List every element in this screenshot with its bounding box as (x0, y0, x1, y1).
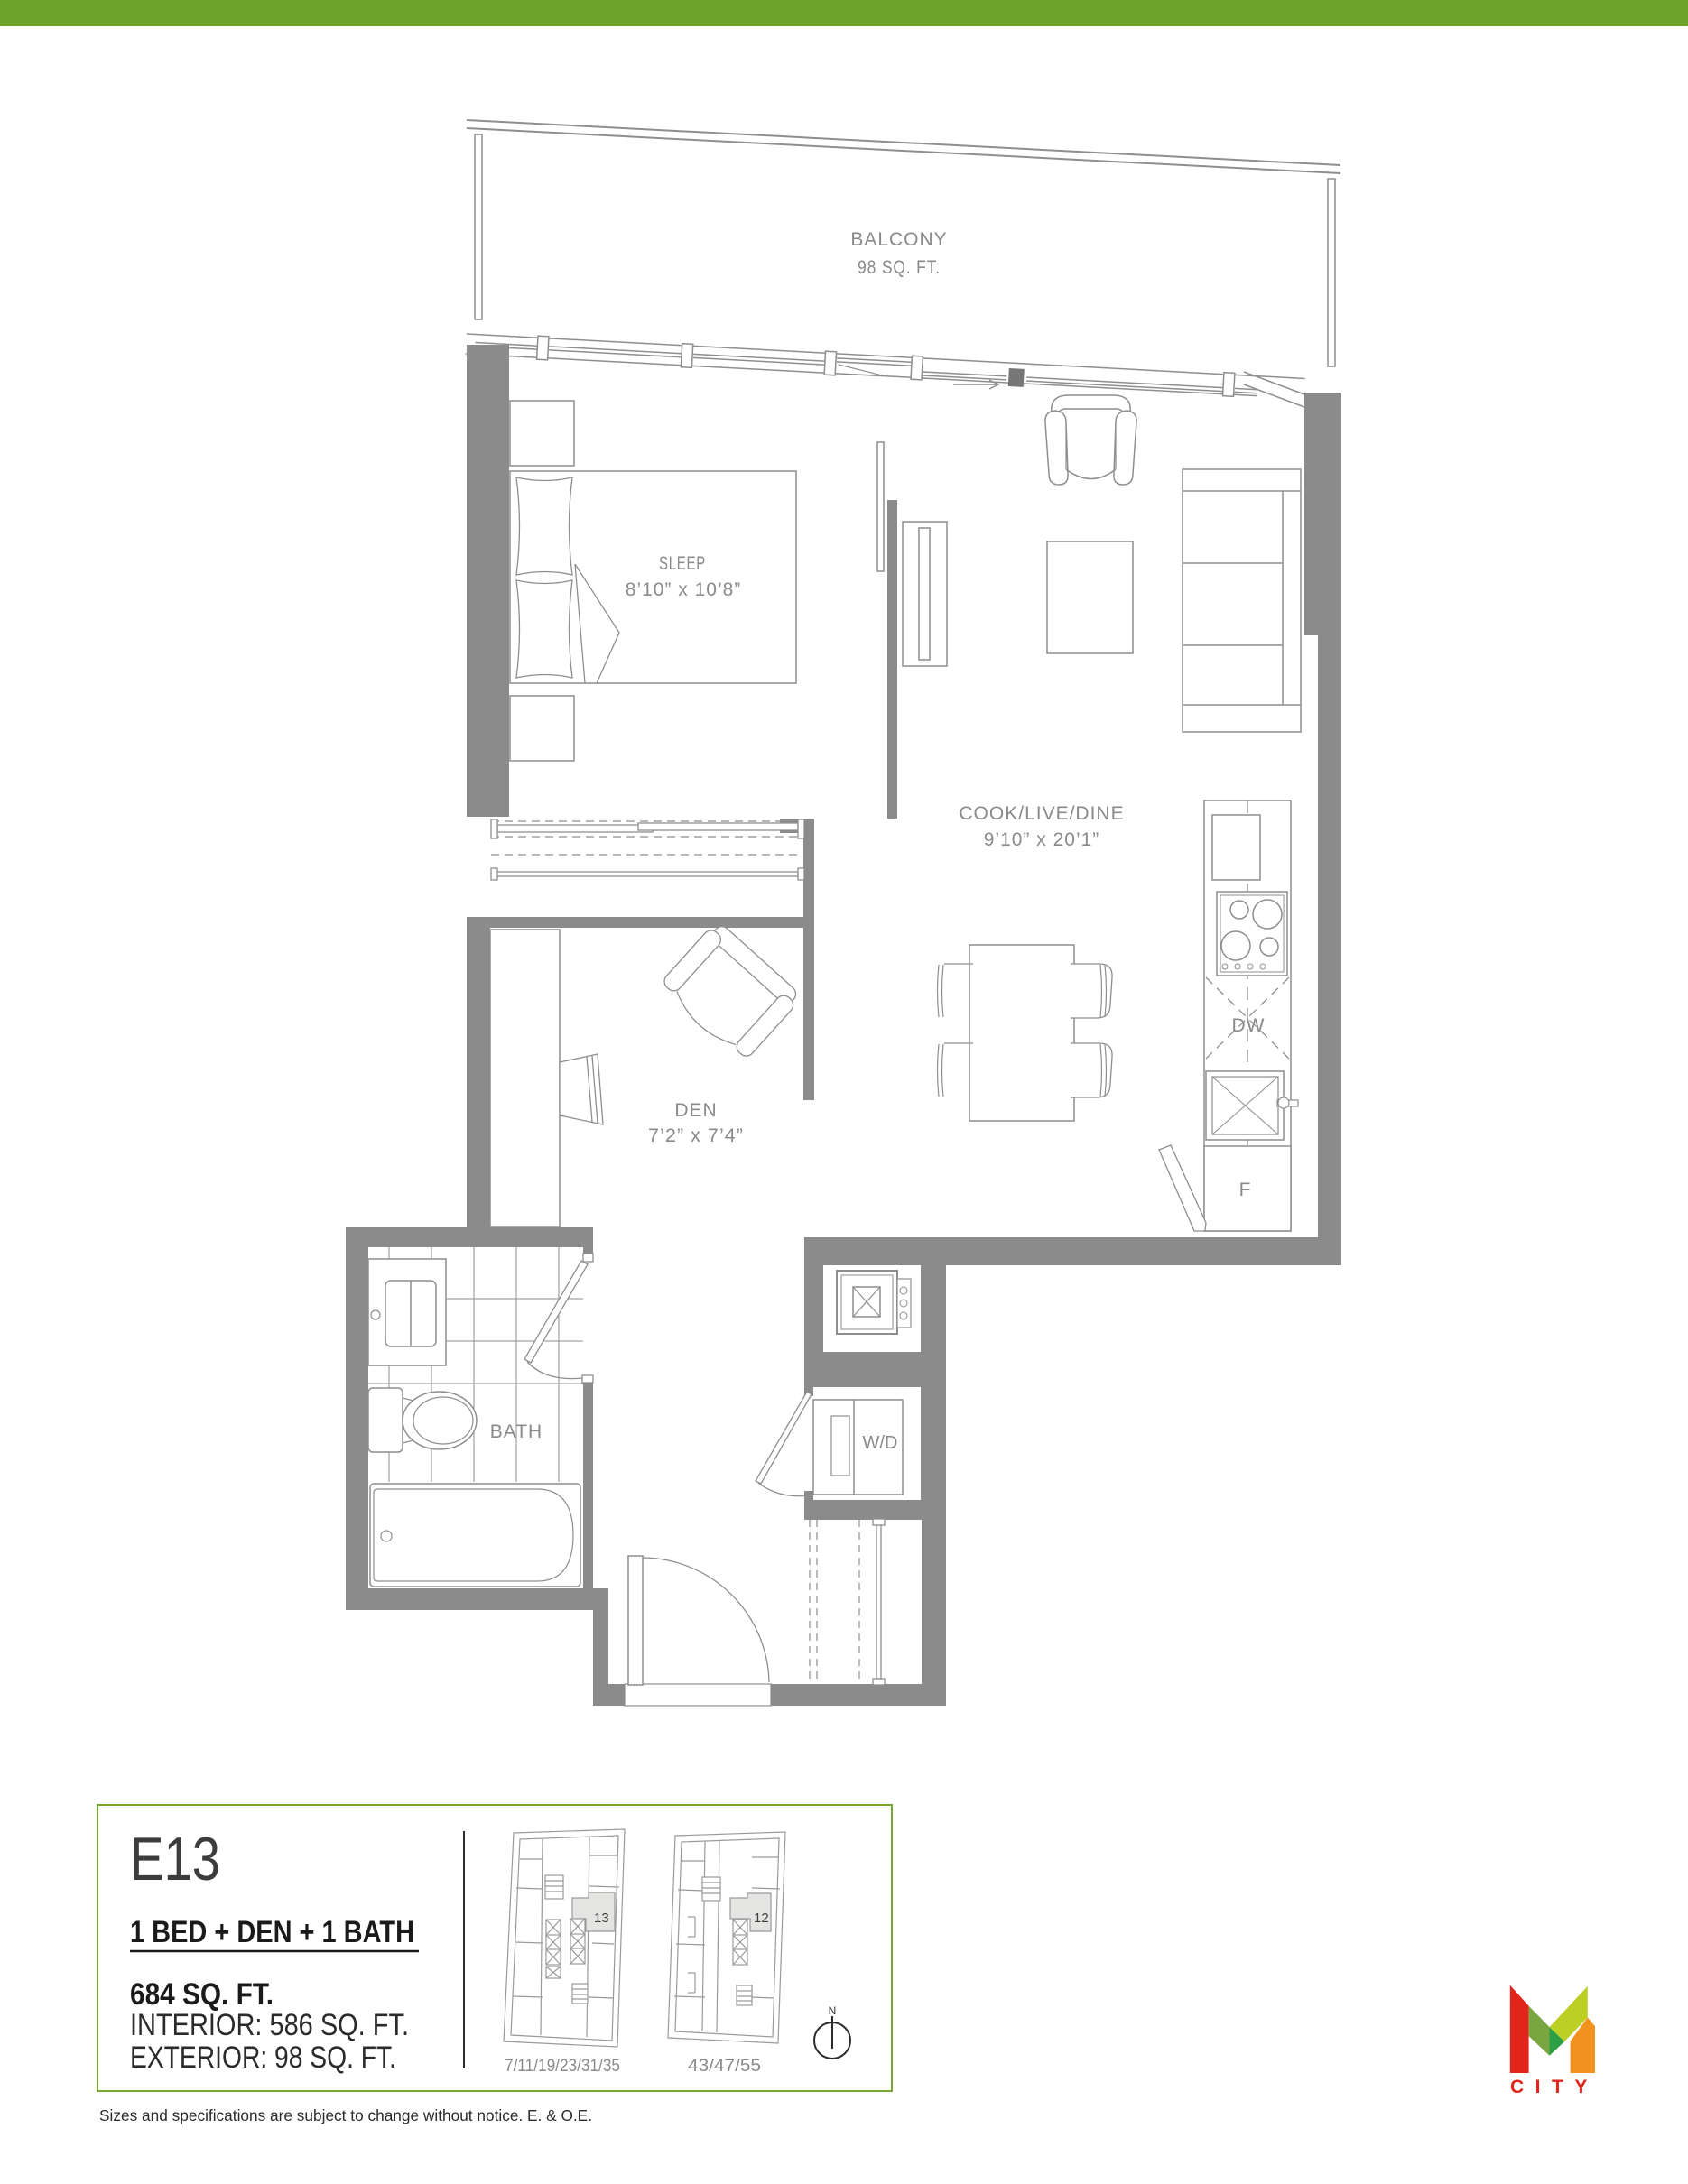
svg-text:1 BED + DEN + 1 BATH: 1 BED + DEN + 1 BATH (130, 1915, 414, 1949)
svg-text:SLEEP: SLEEP (659, 553, 706, 574)
svg-text:13: 13 (594, 1911, 609, 1926)
svg-text:EXTERIOR: 98 SQ. FT.: EXTERIOR: 98 SQ. FT. (130, 2041, 396, 2075)
svg-text:INTERIOR: 586 SQ. FT.: INTERIOR: 586 SQ. FT. (130, 2008, 409, 2042)
svg-text:9’10” x 20’1”: 9’10” x 20’1” (984, 829, 1100, 850)
svg-text:F: F (1239, 1180, 1251, 1200)
svg-text:98 SQ. FT.: 98 SQ. FT. (858, 257, 941, 278)
svg-text:43/47/55: 43/47/55 (688, 2057, 761, 2076)
svg-text:W/D: W/D (863, 1433, 898, 1453)
svg-text:8’10” x 10’8”: 8’10” x 10’8” (626, 579, 742, 600)
svg-text:DEN: DEN (674, 1100, 717, 1121)
svg-text:BALCONY: BALCONY (850, 229, 947, 250)
svg-text:DW: DW (1232, 1015, 1266, 1036)
svg-text:Sizes and specifications are s: Sizes and specifications are subject to … (99, 2106, 592, 2124)
svg-text:N: N (829, 2004, 837, 2017)
svg-text:7’2” x 7’4”: 7’2” x 7’4” (648, 1125, 744, 1146)
svg-text:7/11/19/23/31/35: 7/11/19/23/31/35 (505, 2057, 620, 2076)
svg-text:COOK/LIVE/DINE: COOK/LIVE/DINE (959, 803, 1124, 824)
svg-text:E13: E13 (130, 1825, 220, 1893)
svg-text:684 SQ. FT.: 684 SQ. FT. (130, 1977, 274, 2012)
svg-text:BATH: BATH (490, 1421, 543, 1442)
svg-text:12: 12 (754, 1911, 769, 1926)
svg-text:CITY: CITY (1510, 2077, 1599, 2097)
